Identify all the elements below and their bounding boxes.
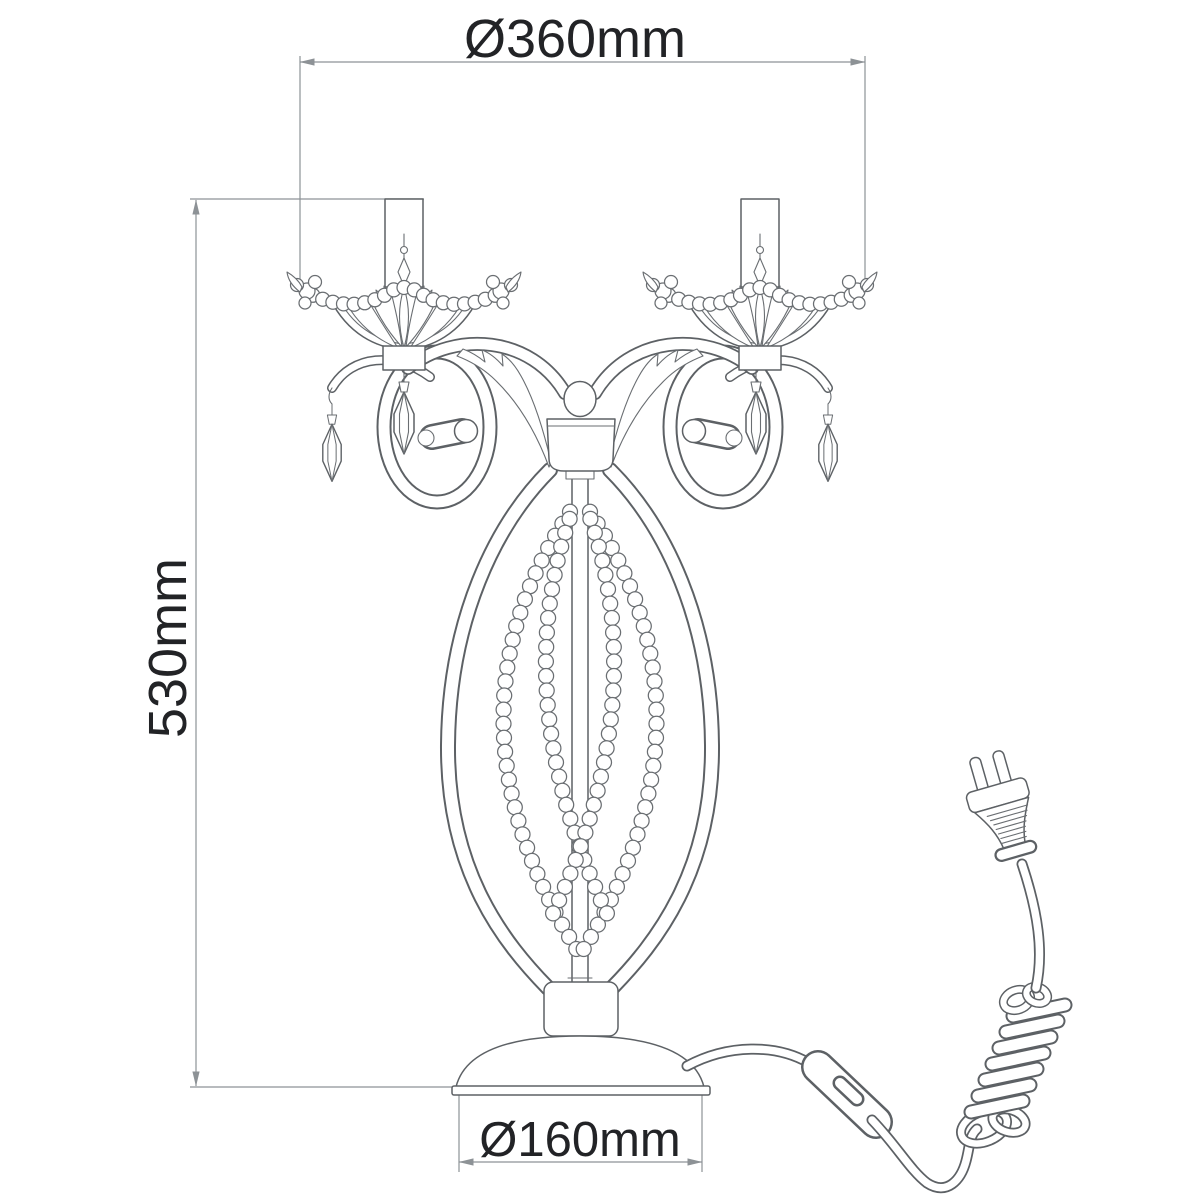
euro-plug [956, 746, 1043, 860]
height-label: 530mm [138, 558, 198, 738]
base-diameter-label: Ø160mm [479, 1113, 681, 1167]
neck-collar [544, 982, 618, 1036]
top-width-label: Ø360mm [464, 9, 686, 69]
base-rim [452, 1086, 710, 1095]
power-cord-assembly [687, 746, 1065, 1188]
left-arm-side [323, 344, 565, 988]
center-cup [547, 419, 615, 471]
cord-coil [971, 1005, 1065, 1112]
lamp-dimension-diagram: Ø360mm 530mm Ø160mm [0, 0, 1200, 1200]
dimension-base-diameter: Ø160mm [459, 1091, 702, 1172]
center-finial-ball [564, 382, 596, 417]
center-stem [572, 470, 588, 984]
base-dome [456, 1036, 704, 1087]
lamp-drawing [287, 199, 1065, 1188]
dimension-annotations: Ø360mm 530mm Ø160mm [138, 9, 865, 1172]
dimension-drawing-canvas: Ø360mm 530mm Ø160mm [0, 0, 1200, 1200]
right-arm-side [595, 344, 837, 988]
